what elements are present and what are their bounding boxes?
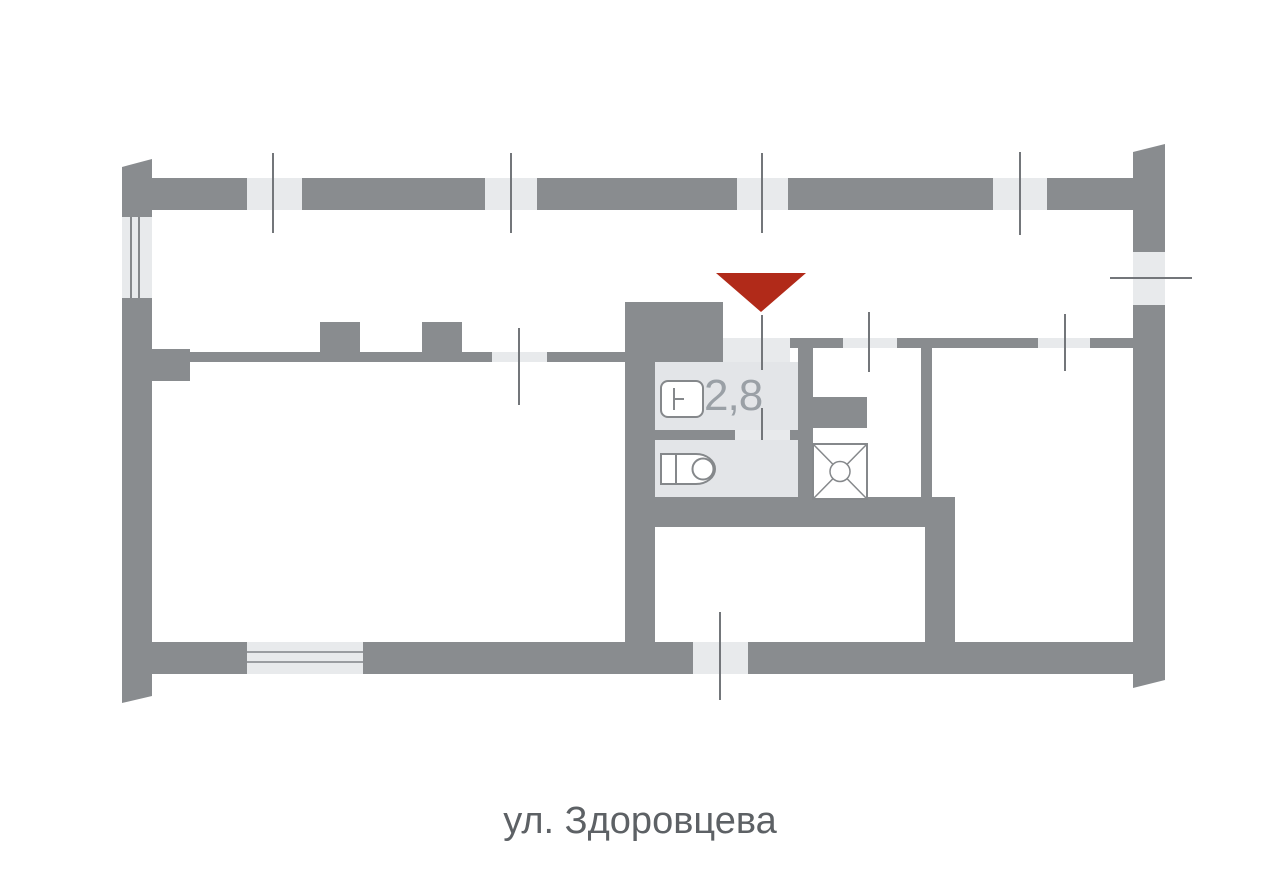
window-bottom-french <box>247 642 363 674</box>
window-left-mullion-1 <box>130 217 132 298</box>
window-top-3-axis <box>761 153 763 233</box>
doorway-bathroom-axis <box>761 315 763 370</box>
shower-tray-icon <box>812 443 868 500</box>
entrance-arrow-icon <box>716 273 806 312</box>
doorway-bathroom <box>723 338 790 362</box>
floor-plan: 2,8 ул. Здоровцева <box>0 0 1280 886</box>
wall-bathroom-right <box>798 338 813 497</box>
window-right-axis <box>1110 277 1192 279</box>
wall-interior-a2 <box>547 352 625 362</box>
column-2 <box>422 322 462 352</box>
window-top-2-axis <box>510 153 512 233</box>
wall-right <box>1133 144 1165 688</box>
window-bottom-french-line-1 <box>247 651 363 653</box>
wall-interior-b3 <box>1090 338 1133 348</box>
sink-icon <box>660 380 704 418</box>
window-left-mullion-2 <box>138 217 140 298</box>
toilet-icon <box>660 453 716 485</box>
street-caption: ул. Здоровцева <box>0 802 1280 840</box>
wall-thin-right-room <box>921 348 932 497</box>
window-bottom-french-line-2 <box>247 661 363 663</box>
door-living-room-axis <box>518 328 520 405</box>
window-left <box>122 217 152 298</box>
wall-interior-b2 <box>897 338 1038 348</box>
door-bottom-axis <box>719 612 721 700</box>
wall-inner-room-right <box>925 527 955 642</box>
door-room-right-axis <box>1064 314 1066 371</box>
wall-bathroom-left <box>625 362 655 642</box>
column-1 <box>320 322 360 352</box>
window-top-4-axis <box>1019 152 1021 235</box>
door-corridor <box>843 338 897 348</box>
wall-shaft-block <box>625 302 723 362</box>
window-top-1 <box>247 178 302 210</box>
wall-pier-left <box>152 349 190 381</box>
room-area-label: 2,8 <box>704 374 762 418</box>
wall-interior-a1 <box>190 352 492 362</box>
duct-block <box>813 397 867 428</box>
wall-inner-horizontal <box>655 497 955 527</box>
window-top-1-axis <box>272 153 274 233</box>
door-corridor-axis <box>868 312 870 372</box>
